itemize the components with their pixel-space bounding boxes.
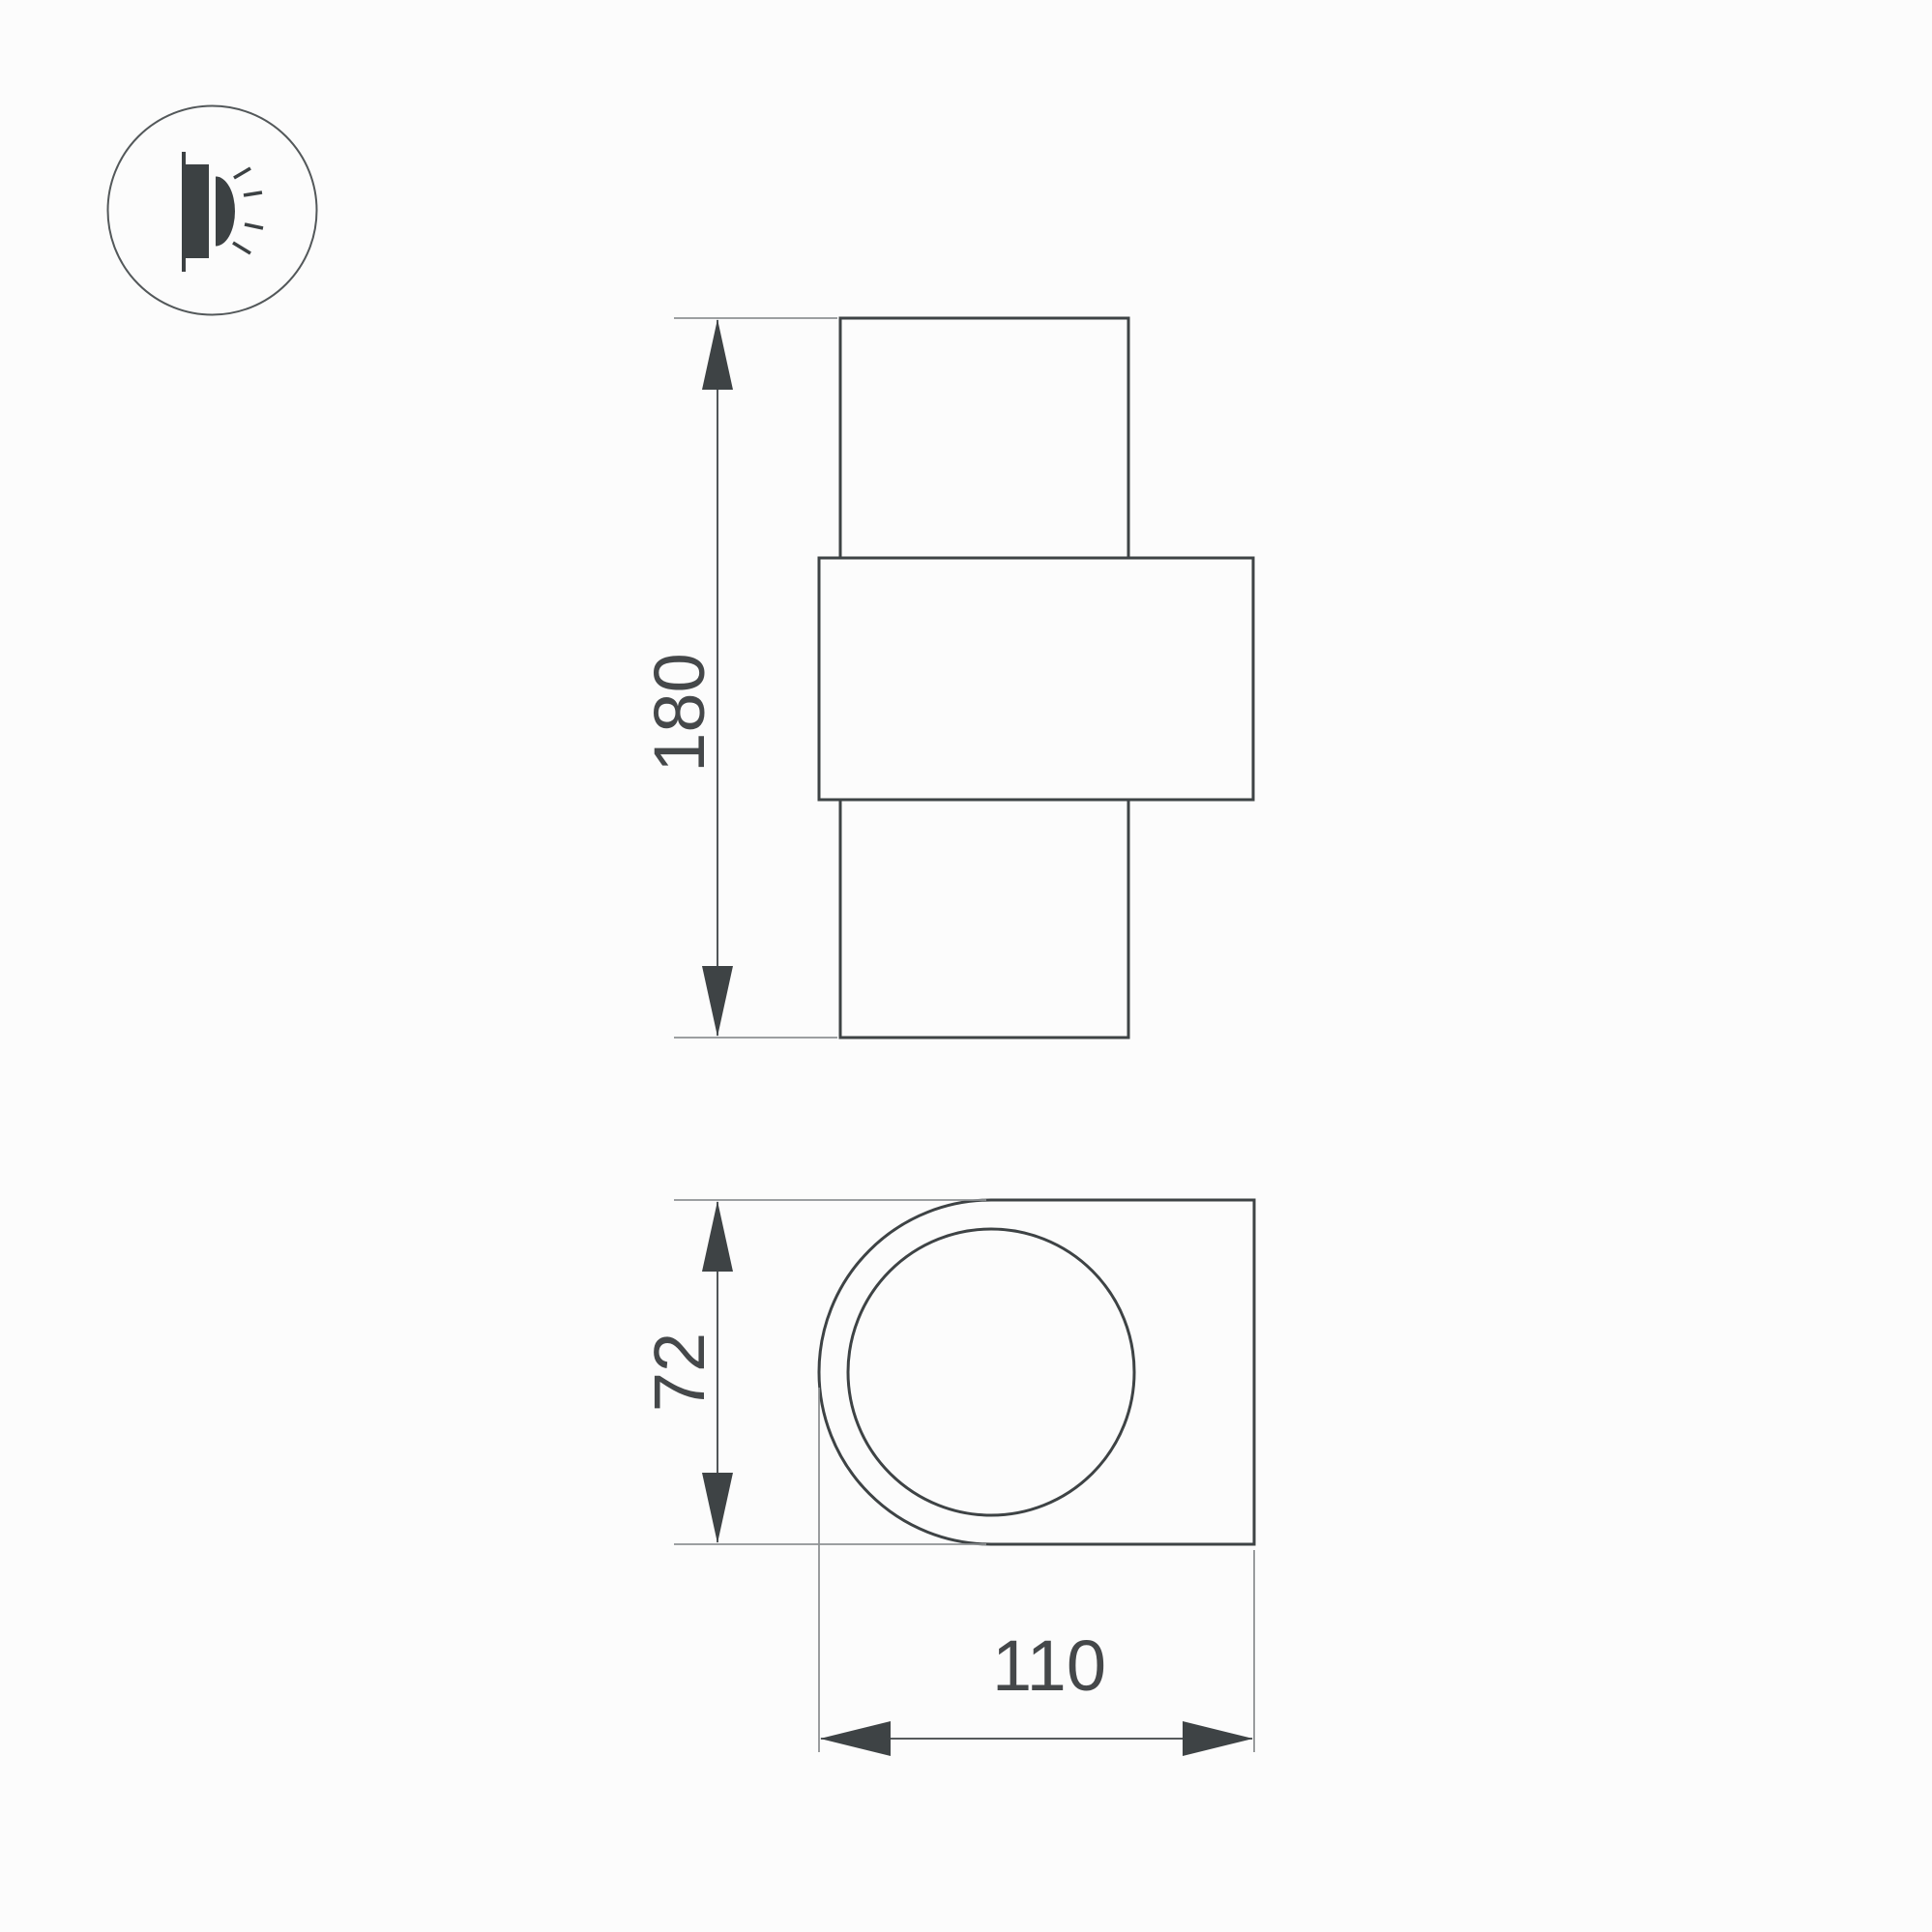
arrow-right-icon — [1183, 1721, 1253, 1756]
icon-outline-circle — [108, 106, 317, 315]
width-dimension-label: 110 — [992, 1625, 1106, 1706]
width-dimension-110: 110 — [819, 1388, 1254, 1756]
light-ray-icon — [234, 168, 250, 178]
technical-drawing-page: 180 72 110 — [0, 0, 1932, 1932]
side-view-body — [819, 1200, 1254, 1544]
dimension-drawing: 180 72 110 — [0, 0, 1932, 1932]
depth-dimension-label: 72 — [639, 1332, 719, 1412]
front-view-band — [819, 558, 1253, 800]
light-ray-icon — [233, 243, 250, 253]
light-ray-icon — [244, 192, 262, 195]
arrow-up-icon — [702, 1201, 733, 1272]
wall-lamp-icon — [108, 106, 317, 315]
light-ray-icon — [245, 224, 263, 228]
arrow-down-icon — [702, 1473, 733, 1543]
arrow-down-icon — [702, 966, 733, 1037]
side-view-lens-circle — [848, 1229, 1134, 1515]
lamp-body-icon — [186, 164, 209, 258]
arrow-left-icon — [820, 1721, 891, 1756]
arrow-up-icon — [702, 319, 733, 390]
side-view — [819, 1200, 1254, 1544]
lamp-glow-icon — [216, 177, 235, 247]
light-rays-icon — [233, 168, 263, 253]
front-view — [819, 318, 1253, 1038]
height-dimension-180: 180 — [639, 318, 837, 1038]
height-dimension-label: 180 — [639, 653, 719, 772]
depth-dimension-72: 72 — [639, 1200, 986, 1544]
